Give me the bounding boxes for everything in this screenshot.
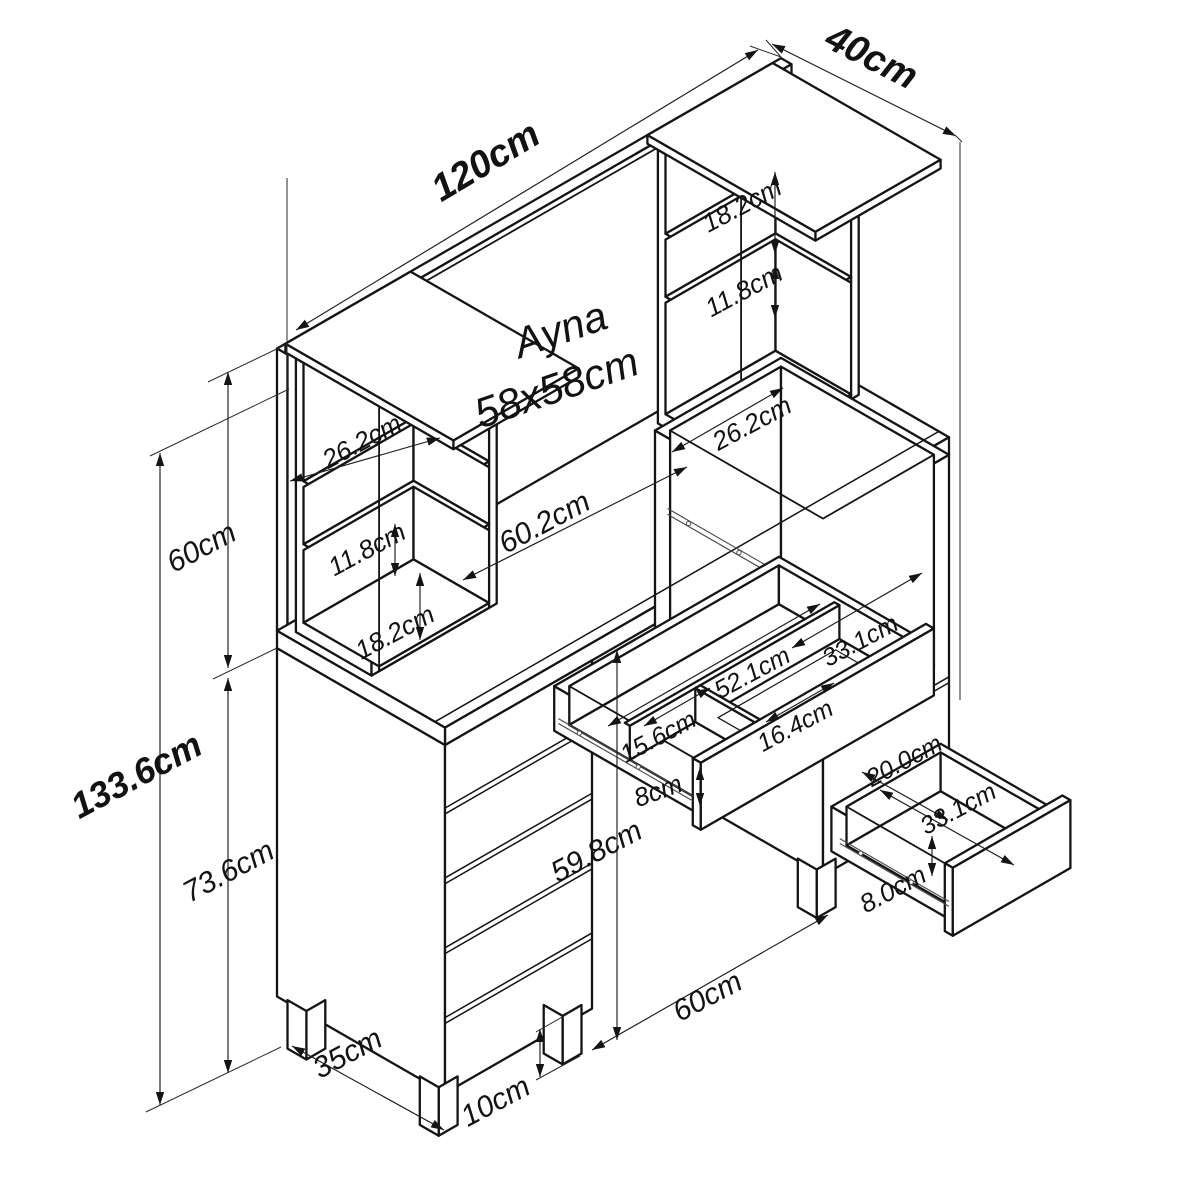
dimension-arrow xyxy=(224,655,232,668)
leg-mid-side xyxy=(544,1005,563,1064)
dimension-arrow xyxy=(156,453,164,466)
rail-roller xyxy=(737,550,741,554)
leg-box-left-side xyxy=(798,859,817,918)
extension-line xyxy=(208,345,285,382)
dimension-arrow xyxy=(224,678,232,691)
dimension-arrow xyxy=(296,320,309,330)
drawing-page: 120cm 40cm 18.2cm 11.8cm 26.2cm 26.2cm 1… xyxy=(0,0,1200,1200)
dim-label-knee-width: 60cm xyxy=(667,965,747,1029)
rail-roller xyxy=(859,851,863,855)
technical-drawing: 120cm 40cm 18.2cm 11.8cm 26.2cm 26.2cm 1… xyxy=(0,0,1200,1200)
extension-line xyxy=(150,389,289,456)
dimension-arrow xyxy=(943,126,957,136)
dim-label-upper-height: 60cm xyxy=(161,516,241,580)
extension-line xyxy=(956,136,962,142)
rail-roller xyxy=(686,521,690,525)
dim-label-total-depth: 40cm xyxy=(818,16,925,98)
rail-roller xyxy=(577,731,581,735)
dimension-arrow xyxy=(536,1064,544,1077)
dimension-arrow xyxy=(156,1092,164,1105)
dimension-arrow xyxy=(745,50,758,60)
dim-label-total-height: 133.6cm xyxy=(64,724,209,827)
rail-roller xyxy=(636,765,640,769)
leg-mid xyxy=(563,1005,582,1064)
leg-front-left xyxy=(439,1076,458,1135)
leg-box-left xyxy=(817,859,836,918)
furniture-linework xyxy=(146,40,1070,1136)
dimension-arrow xyxy=(592,1040,605,1050)
extension-line xyxy=(146,1047,281,1112)
extension-line xyxy=(213,648,277,679)
dim-label-total-width: 120cm xyxy=(424,113,547,210)
